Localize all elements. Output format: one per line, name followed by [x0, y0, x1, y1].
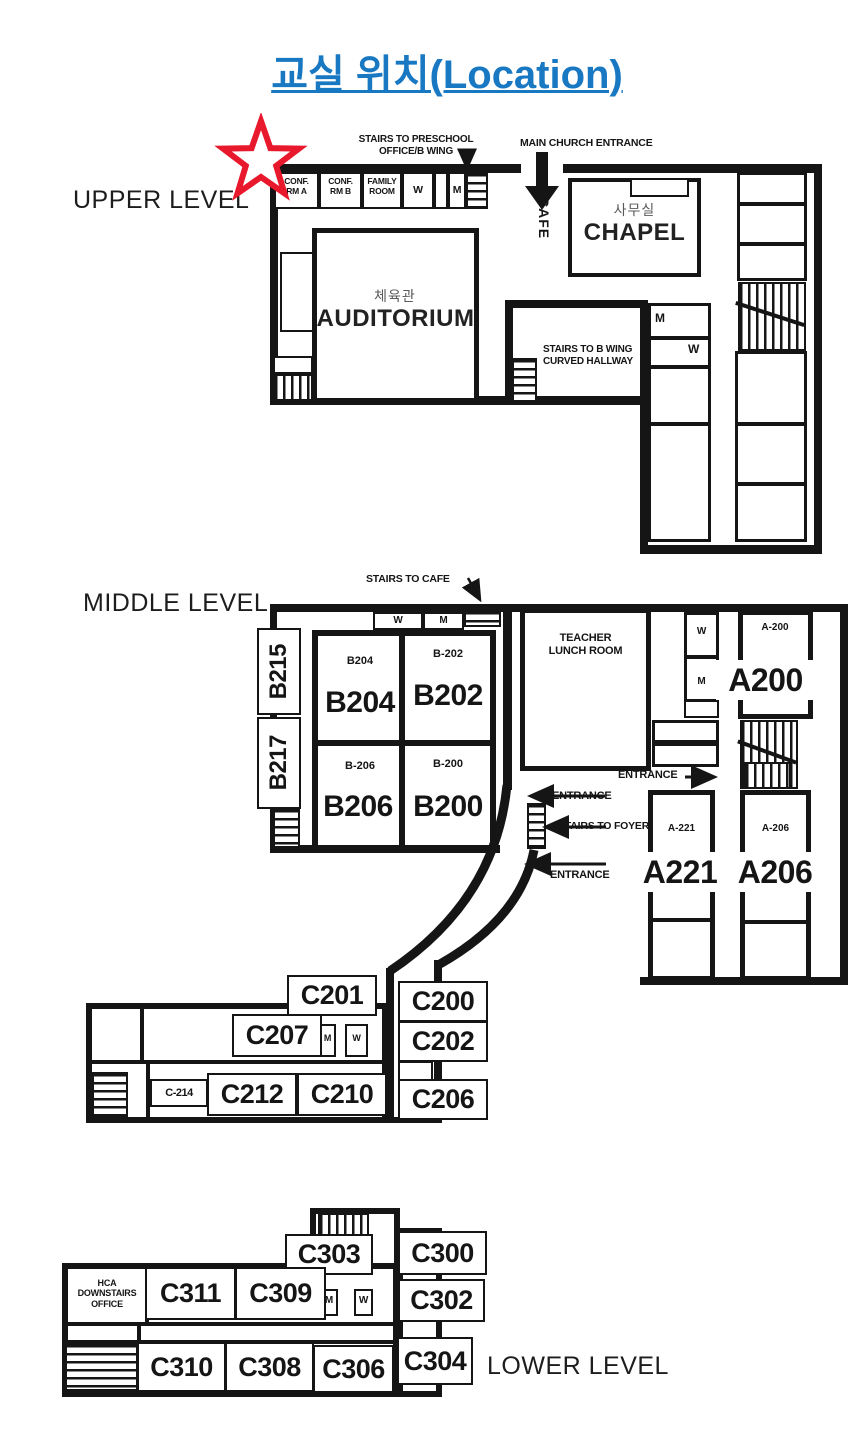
stairs-cafe-note: STAIRS TO CAFE — [366, 573, 450, 585]
stairs-preschool-hatch — [466, 172, 488, 209]
page-title: 교실 위치(Location) — [40, 42, 854, 100]
c202-label: C202 — [398, 1021, 488, 1062]
lower-wall-h1 — [66, 1322, 396, 1326]
c300-label: C300 — [398, 1231, 487, 1275]
room-m-right-label: M — [684, 676, 719, 688]
right-room-6 — [735, 483, 807, 542]
hca-office-label: HCA DOWNSTAIRS OFFICE — [68, 1278, 146, 1309]
cafe-label: CAFE — [536, 197, 552, 239]
upper-wall-wing-left — [640, 303, 648, 554]
entrance2-label: ENTRANCE — [550, 869, 610, 882]
a206-label: A206 — [731, 852, 819, 892]
upper-wall-right — [814, 164, 822, 554]
b215-label-box: B215 — [257, 628, 301, 715]
upper-wall-bottom-right — [640, 545, 822, 554]
b204-label: B204 — [322, 683, 398, 723]
auditorium-left-room — [273, 356, 313, 374]
b202-label: B202 — [410, 676, 486, 716]
stairs-bwing-hatch — [512, 358, 537, 404]
entrance-right-label: ENTRANCE — [618, 769, 678, 782]
b-wing-wall-h — [318, 740, 490, 746]
c-wing-stairs-hatch — [92, 1072, 128, 1118]
b206-label: B206 — [320, 787, 396, 827]
room-w2-label: W — [688, 343, 699, 357]
room-family-label: FAMILY ROOM — [362, 177, 402, 197]
entrance1-label: ENTRANCE — [552, 790, 612, 803]
c207-label: C207 — [232, 1014, 322, 1057]
b217-label-box: B217 — [257, 717, 301, 809]
auditorium-left-notch — [280, 252, 314, 332]
middle-wall-right — [840, 604, 848, 985]
c200-label: C200 — [398, 981, 488, 1022]
stairs-cafe-hatch — [464, 610, 501, 627]
a221-inner-wall — [652, 918, 711, 922]
stairs-preschool-note: STAIRS TO PRESCHOOL OFFICE/B WING — [352, 134, 480, 157]
right-room-5 — [735, 423, 807, 485]
room-w2 — [648, 337, 711, 368]
main-entrance-note: MAIN CHURCH ENTRANCE — [520, 137, 680, 149]
right-room-1 — [737, 172, 807, 205]
b-wing-stairs-hatch — [273, 808, 300, 848]
room-w-top-label: W — [373, 615, 423, 627]
b215-label: B215 — [265, 644, 293, 699]
lower-level-label: LOWER LEVEL — [487, 1352, 669, 1381]
chapel-en-label: CHAPEL — [568, 219, 701, 247]
a206-inner-wall — [744, 920, 807, 924]
auditorium-en-label: AUDITORIUM — [312, 305, 479, 333]
room-conf-b-label: CONF. RM B — [319, 177, 362, 197]
mid-room-2 — [652, 743, 719, 767]
auditorium-stairs-hatch — [273, 374, 313, 401]
a200-label: A200 — [716, 660, 815, 700]
c309-label: C309 — [235, 1267, 326, 1320]
a221-label: A221 — [636, 852, 724, 892]
b217-label: B217 — [265, 735, 293, 790]
teacher-lunch-label: TEACHER LUNCH ROOM — [520, 632, 651, 657]
right-room-3 — [737, 243, 807, 281]
foyer-stairs-hatch — [527, 803, 546, 849]
b200-id: B-200 — [412, 758, 484, 770]
c304-label: C304 — [397, 1337, 473, 1385]
room-m2-label: M — [655, 312, 665, 326]
c311-label: C311 — [145, 1267, 236, 1320]
b206-id: B-206 — [326, 760, 394, 772]
right-room-4 — [735, 351, 807, 425]
right-room-2 — [737, 203, 807, 245]
room-m-top-label: M — [423, 615, 464, 627]
mid-room-1 — [652, 720, 719, 743]
b204-id: B204 — [326, 655, 394, 667]
c308-label: C308 — [225, 1342, 314, 1392]
star-icon — [213, 113, 309, 209]
room-small-right — [684, 700, 719, 718]
curved-hallway-right-wall — [440, 850, 534, 964]
a206-id: A-206 — [744, 823, 807, 834]
c-wing-wall-h — [90, 1060, 384, 1064]
inner-room-2 — [648, 423, 711, 542]
c310-label: C310 — [137, 1342, 226, 1392]
entrance-opening — [521, 163, 563, 174]
chapel-notch — [630, 178, 689, 197]
room-w-right-label: W — [684, 626, 719, 638]
lower-wall-jog — [137, 1322, 141, 1342]
middle-wall-curve-v — [503, 610, 512, 790]
room-small-upper — [434, 172, 448, 209]
c201-label: C201 — [287, 975, 377, 1016]
stairs-bwing-note: STAIRS TO B WING CURVED HALLWAY — [543, 344, 655, 367]
c302-label: C302 — [398, 1279, 485, 1322]
room-w-upper-label: W — [402, 184, 434, 196]
room-m-upper-label: M — [448, 184, 466, 196]
c306-label: C306 — [313, 1345, 394, 1393]
c214-label: C-214 — [150, 1079, 208, 1107]
upper-wall-mid-h — [505, 300, 648, 308]
lower-stairs-hatch — [65, 1343, 138, 1391]
a206-stairs-hatch — [744, 762, 791, 789]
floor-plan-page: 교실 위치(Location) UPPER LEVEL CONF. RM A C… — [0, 0, 854, 1441]
room-mw-w-label: W — [345, 1033, 368, 1043]
a200-id: A-200 — [742, 622, 808, 633]
lower-room-w-label: W — [354, 1295, 373, 1307]
auditorium-kr-label: 체육관 — [320, 288, 470, 304]
chapel-kr-label: 사무실 — [568, 202, 701, 218]
c206-label: C206 — [398, 1079, 488, 1120]
c212-label: C212 — [207, 1073, 297, 1116]
corridor-wall-left — [386, 968, 394, 1123]
b202-id: B-202 — [412, 648, 484, 660]
cafe-arrow-icon — [468, 578, 479, 598]
middle-level-label: MIDDLE LEVEL — [83, 589, 268, 618]
stairs-foyer-label: STAIRS TO FOYER — [558, 820, 649, 832]
inner-room-1 — [648, 366, 711, 425]
c-wing-wall-v1 — [140, 1008, 144, 1062]
b200-label: B200 — [410, 787, 486, 827]
c210-label: C210 — [297, 1073, 387, 1116]
a221-id: A-221 — [652, 823, 711, 834]
